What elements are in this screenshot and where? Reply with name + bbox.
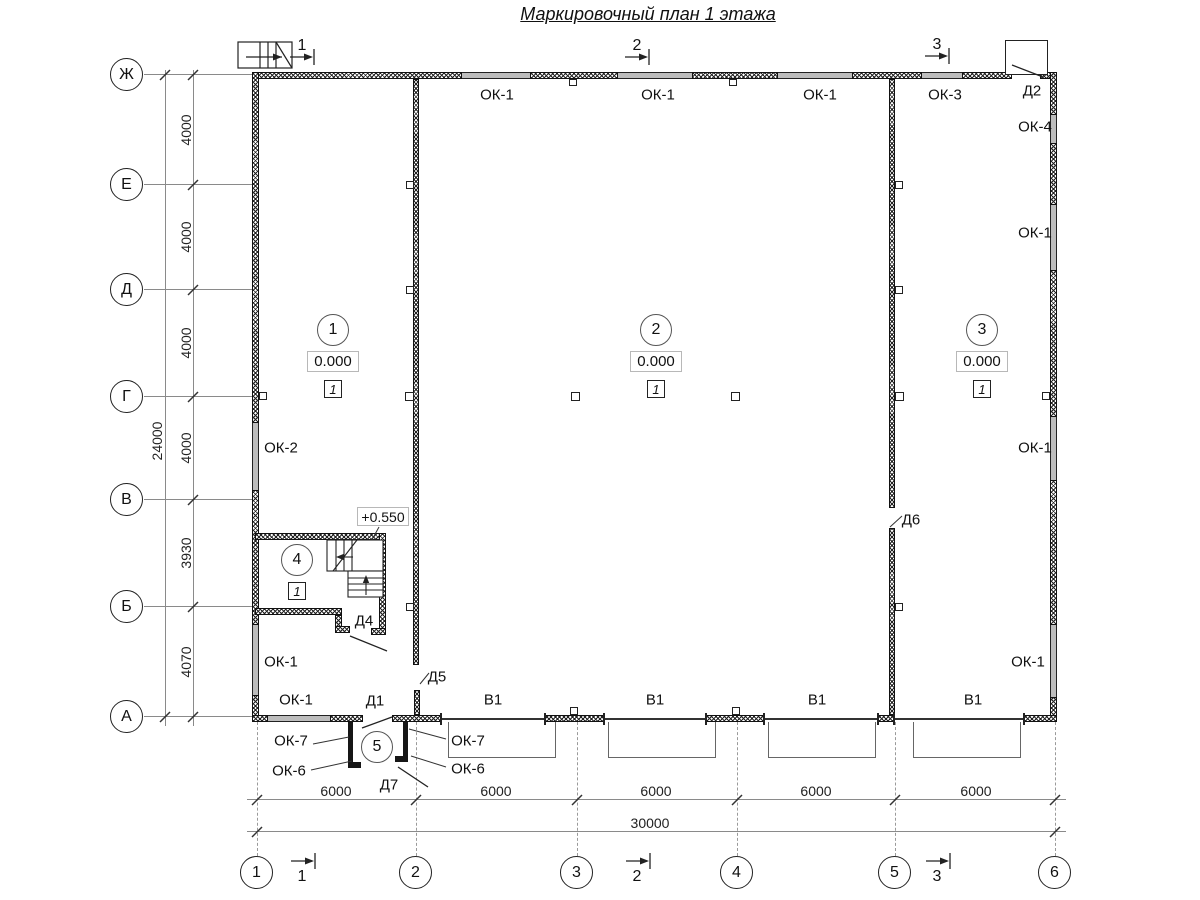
window-label-ok1-top-2: ОК-1 [641,87,675,104]
dim-6000-1: 6000 [320,783,351,799]
window-ok1-top-3 [778,72,852,79]
room-number-2: 2 [640,314,672,346]
floor-type-room-3: 1 [973,380,991,398]
axis-circle-row-g: Г [110,380,143,413]
dim-24000: 24000 [149,422,165,461]
wall-right [1050,143,1057,205]
wall-bottom [252,715,268,722]
wall-top [252,72,462,79]
axis-label: 6 [1050,864,1059,882]
window-label-ok1-bottom: ОК-1 [279,692,313,709]
dim-4000-4: 4000 [178,432,194,463]
interior-wall-axis2-stub [414,690,420,715]
stair-room-wall-bottom [255,608,342,615]
window-label-ok1-top-3: ОК-1 [803,87,837,104]
axis-line-row [144,499,252,500]
axis-label: 1 [252,864,261,882]
wall-bottom [392,715,441,722]
elevation-stair-landing: +0.550 [357,507,409,526]
axis-line-row [144,716,252,717]
wall-bottom [706,715,764,722]
elevation-room-1: 0.000 [307,351,359,372]
door-leaves [350,65,1043,787]
wall-top [852,72,922,79]
pilaster [729,79,737,86]
pilaster [895,603,903,611]
wall-top [530,72,618,79]
axis-label: Б [121,598,132,616]
pilaster [406,181,414,189]
gate-v1-4 [894,718,1024,720]
interior-wall-axis2 [413,79,419,665]
interior-wall-axis5-lower [889,528,895,715]
window-label-ok1-right-2: ОК-1 [1018,440,1052,457]
axis-line-col [577,722,578,856]
axis-line-row [144,289,252,290]
axis-label: 2 [411,864,420,882]
dim-4070: 4070 [178,646,194,677]
stair-room-wall-top [255,533,386,540]
window-label-ok6-right: ОК-6 [451,761,485,778]
axis-circle-row-e: Е [110,168,143,201]
axis-circle-col-6: 6 [1038,856,1071,889]
dim-3930: 3930 [178,537,194,568]
dim-6000-4: 6000 [800,783,831,799]
pilaster [732,707,740,715]
gate-v1-3 [764,718,878,720]
wall-right [1050,480,1057,625]
dim-6000-5: 6000 [960,783,991,799]
window-label-ok1-left: ОК-1 [264,654,298,671]
wall-right [1050,270,1057,417]
axis-circle-col-5: 5 [878,856,911,889]
axis-label: Д [121,281,132,299]
section-mark-1-bottom: 1 [298,868,307,886]
window-ok1-bottom [268,715,330,722]
loading-ramp [608,722,716,758]
wall-bottom [330,715,363,722]
room-number-5: 5 [361,731,393,763]
pilaster [406,603,414,611]
dimension-line-left [193,70,194,726]
room-number-1: 1 [317,314,349,346]
window-ok2 [252,423,259,490]
room-number-label: 3 [978,321,987,339]
floor-type-room-2: 1 [647,380,665,398]
axis-label: 5 [890,864,899,882]
vestibule-d2-outline [1005,40,1048,75]
room-number-4: 4 [281,544,313,576]
pilaster [895,181,903,189]
dimension-line-30000 [247,831,1066,832]
pilaster [259,392,267,400]
axis-label: Е [121,176,132,194]
window-ok1-top-2 [618,72,692,79]
window-ok1-left [252,625,259,695]
entrance-stair-icon [238,42,292,68]
wall-bottom [545,715,604,722]
dim-4000-3: 4000 [178,327,194,358]
axis-circle-col-4: 4 [720,856,753,889]
floor-type-room-4: 1 [288,582,306,600]
pilaster [406,286,414,294]
room-number-label: 5 [373,738,382,756]
window-ok1-right-3 [1050,625,1057,697]
axis-line-row [144,74,252,75]
room-number-label: 4 [293,551,302,569]
door-leaf-d1 [362,717,392,728]
floor-plan-drawing: Маркировочный план 1 этажа [0,0,1200,900]
axis-label: В [121,491,132,509]
axis-circle-row-d: Д [110,273,143,306]
pilaster [895,392,904,401]
pilaster [569,79,577,86]
door-label-d1: Д1 [366,693,385,710]
dimension-line-24000 [165,70,166,726]
axis-line-col [257,722,258,856]
axis-label: Г [122,388,131,406]
axis-circle-row-a: А [110,700,143,733]
wall-left [252,72,259,423]
door-label-d4: Д4 [355,613,374,630]
drawing-title: Маркировочный план 1 этажа [520,4,775,25]
axis-label: А [121,708,132,726]
axis-circle-row-b: Б [110,590,143,623]
section-mark-3-top: 3 [933,36,942,54]
vestibule5-foot-left [348,762,361,768]
vestibule5-foot-right [395,756,408,762]
axis-circle-col-1: 1 [240,856,273,889]
floor-type-room-1: 1 [324,380,342,398]
pilaster [405,392,414,401]
window-label-ok6-left: ОК-6 [272,763,306,780]
axis-line-col [416,722,417,856]
axis-line-row [144,606,252,607]
door-leaf-d7 [398,767,428,787]
wall-top [692,72,778,79]
axis-line-col [895,722,896,856]
window-ok1-top-1 [462,72,530,79]
wall-left [252,490,259,625]
staircase [327,540,383,597]
window-label-ok1-right-1: ОК-1 [1018,225,1052,242]
gate-label-v1-1: В1 [484,692,502,709]
axis-label: Ж [119,66,134,84]
room-number-label: 1 [329,321,338,339]
axis-line-row [144,396,252,397]
window-label-ok7-right: ОК-7 [451,733,485,750]
window-label-ok1-right-3: ОК-1 [1011,654,1045,671]
stair-room-wall-stub-foot [335,626,350,633]
elevation-room-3: 0.000 [956,351,1008,372]
room-number-3: 3 [966,314,998,346]
section-mark-2-bottom: 2 [633,868,642,886]
gate-v1-1 [441,718,545,720]
column [731,392,740,401]
axis-label: 4 [732,864,741,882]
axis-line-col [737,722,738,856]
dim-30000: 30000 [631,815,670,831]
door-label-d7: Д7 [380,777,399,794]
window-label-ok3: ОК-3 [928,87,962,104]
section-mark-3-bottom: 3 [933,868,942,886]
pilaster [895,286,903,294]
window-label-ok4: ОК-4 [1018,119,1052,136]
dim-6000-3: 6000 [640,783,671,799]
elevation-room-2: 0.000 [630,351,682,372]
door-label-d5: Д5 [428,669,447,686]
door-leaf-d4 [350,636,387,651]
wall-right [1050,72,1057,115]
dim-4000-2: 4000 [178,221,194,252]
wall-bottom [878,715,894,722]
axis-line-row [144,184,252,185]
stair-room-wall-right [379,533,386,635]
gate-v1-2 [604,718,706,720]
section-mark-1-top: 1 [298,37,307,55]
loading-ramp [768,722,876,758]
axis-circle-row-v: В [110,483,143,516]
window-ok3 [922,72,962,79]
axis-label: 3 [572,864,581,882]
window-label-ok2: ОК-2 [264,440,298,457]
dim-6000-2: 6000 [480,783,511,799]
door-label-d2: Д2 [1023,83,1042,100]
pilaster [570,707,578,715]
loading-ramp [913,722,1021,758]
pilaster [1042,392,1050,400]
axis-circle-col-3: 3 [560,856,593,889]
dimension-line-bottom [247,799,1066,800]
column [571,392,580,401]
axis-circle-col-2: 2 [399,856,432,889]
gate-label-v1-4: В1 [964,692,982,709]
gate-label-v1-2: В1 [646,692,664,709]
window-label-ok1-top-1: ОК-1 [480,87,514,104]
room-number-label: 2 [652,321,661,339]
wall-bottom [1024,715,1057,722]
dim-4000-1: 4000 [178,114,194,145]
section-mark-2-top: 2 [633,37,642,55]
door-label-d6: Д6 [902,512,921,529]
axis-line-col [1055,722,1056,856]
gate-label-v1-3: В1 [808,692,826,709]
axis-circle-row-zh: Ж [110,58,143,91]
window-label-ok7-left: ОК-7 [274,733,308,750]
